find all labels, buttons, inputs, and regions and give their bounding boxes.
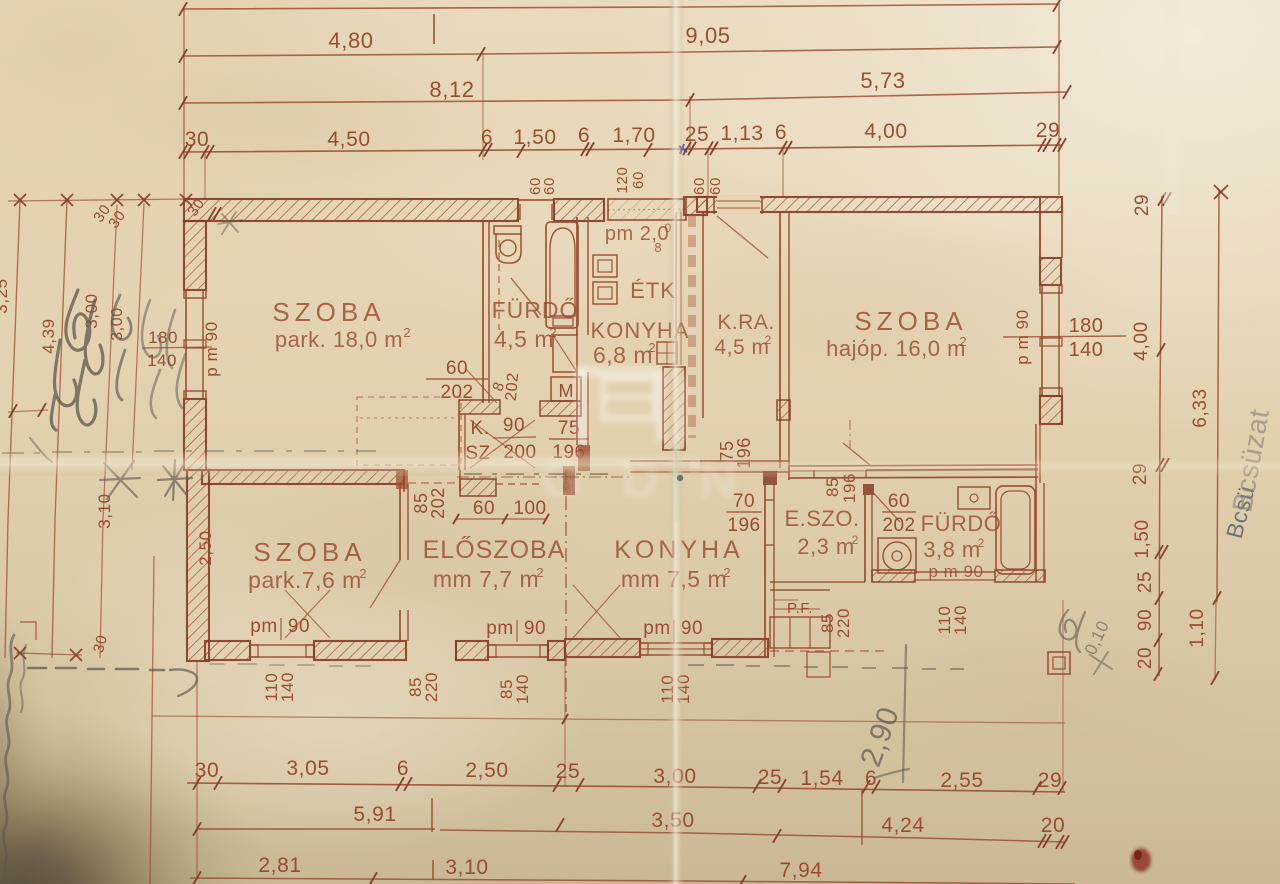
svg-text:K.RA.: K.RA. — [717, 311, 774, 334]
svg-text:6: 6 — [481, 126, 493, 149]
svg-text:180: 180 — [1069, 315, 1104, 337]
svg-text:3,10: 3,10 — [95, 493, 114, 529]
svg-text:1,50: 1,50 — [1132, 519, 1153, 558]
svg-text:2,55: 2,55 — [940, 769, 983, 792]
svg-text:90: 90 — [288, 616, 310, 637]
svg-text:90: 90 — [1135, 609, 1156, 631]
svg-text:25: 25 — [685, 123, 710, 146]
svg-text:220: 220 — [834, 608, 853, 638]
svg-text:pm: pm — [486, 618, 513, 639]
svg-text:mm 7,7 m: mm 7,7 m — [433, 566, 539, 592]
svg-text:60: 60 — [446, 358, 468, 379]
svg-text:196: 196 — [840, 473, 859, 503]
svg-text:p m 90: p m 90 — [929, 562, 984, 581]
svg-text:140: 140 — [951, 605, 970, 635]
svg-text:202: 202 — [882, 515, 915, 536]
svg-text:1,50: 1,50 — [513, 126, 556, 149]
svg-text:park. 18,0 m: park. 18,0 m — [275, 327, 403, 352]
svg-text:30: 30 — [185, 128, 210, 151]
svg-text:1,13: 1,13 — [720, 122, 763, 145]
svg-text:29: 29 — [1038, 769, 1063, 792]
svg-text:1,10: 1,10 — [1187, 608, 1208, 647]
svg-text:5,73: 5,73 — [860, 68, 905, 93]
svg-text:SZOBA: SZOBA — [854, 306, 967, 336]
svg-text:9,05: 9,05 — [685, 23, 730, 48]
svg-text:25: 25 — [758, 766, 783, 789]
svg-text:M: M — [559, 381, 574, 401]
svg-text:2,81: 2,81 — [258, 854, 301, 877]
svg-text:FÜRDŐ: FÜRDŐ — [492, 297, 579, 323]
svg-text:30: 30 — [195, 759, 220, 782]
svg-text:SZOBA: SZOBA — [253, 537, 366, 567]
svg-text:1,70: 1,70 — [612, 124, 655, 147]
svg-text:ELŐSZOBA: ELŐSZOBA — [423, 535, 566, 564]
svg-text:25: 25 — [556, 760, 581, 783]
svg-text:6,33: 6,33 — [1190, 388, 1211, 427]
svg-text:4,50: 4,50 — [327, 128, 370, 151]
svg-text:140: 140 — [1069, 339, 1104, 361]
svg-text:202: 202 — [428, 487, 448, 519]
svg-text:K.: K. — [471, 418, 490, 439]
svg-text:60: 60 — [541, 177, 558, 195]
svg-text:2,3 m: 2,3 m — [797, 534, 855, 559]
svg-text:60: 60 — [630, 171, 647, 189]
svg-text:25: 25 — [1135, 571, 1156, 593]
svg-text:4,5 m: 4,5 m — [714, 336, 769, 359]
svg-text:120: 120 — [614, 167, 631, 194]
svg-text:180: 180 — [148, 328, 178, 347]
svg-text:p m 90: p m 90 — [1013, 309, 1032, 365]
svg-text:220: 220 — [422, 672, 441, 702]
svg-text:3,05: 3,05 — [286, 757, 329, 780]
svg-text:202: 202 — [440, 382, 473, 403]
svg-text:2: 2 — [765, 333, 772, 347]
svg-text:5,91: 5,91 — [353, 803, 396, 826]
svg-text:2: 2 — [723, 565, 730, 580]
svg-text:4,24: 4,24 — [881, 814, 924, 837]
svg-text:4,39: 4,39 — [39, 318, 58, 354]
svg-text:2: 2 — [978, 536, 985, 550]
svg-text:60: 60 — [707, 177, 724, 195]
svg-text:4,5 m: 4,5 m — [494, 326, 554, 352]
svg-text:2: 2 — [536, 565, 543, 580]
svg-text:4,00: 4,00 — [1131, 321, 1152, 360]
svg-text:FÜRDŐ: FÜRDŐ — [921, 511, 1002, 536]
svg-text:6: 6 — [775, 121, 787, 144]
svg-text:1,54: 1,54 — [800, 767, 843, 790]
svg-text:20: 20 — [1135, 647, 1156, 669]
svg-text:6: 6 — [397, 757, 409, 780]
svg-text:pm: pm — [250, 616, 277, 637]
svg-text:140: 140 — [513, 674, 532, 704]
svg-text:3,8 m: 3,8 m — [923, 537, 981, 562]
svg-text:90: 90 — [524, 618, 546, 639]
svg-text:2: 2 — [359, 566, 366, 581]
svg-text:20: 20 — [1041, 814, 1066, 837]
svg-text:29: 29 — [1036, 119, 1061, 142]
svg-text:pm: pm — [643, 618, 670, 639]
svg-text:6: 6 — [578, 124, 590, 147]
svg-text:park.7,6 m: park.7,6 m — [248, 567, 362, 593]
svg-text:7,94: 7,94 — [779, 859, 822, 882]
svg-text:hajóp. 16,0 m: hajóp. 16,0 m — [826, 336, 966, 361]
svg-text:196: 196 — [727, 515, 760, 536]
svg-text:2: 2 — [549, 325, 556, 340]
svg-text:E.SZO.: E.SZO. — [784, 506, 859, 531]
svg-text:2: 2 — [648, 340, 655, 355]
svg-text:60: 60 — [691, 177, 708, 195]
svg-text:2: 2 — [852, 533, 859, 547]
svg-text:4,00: 4,00 — [864, 120, 907, 143]
svg-text:29: 29 — [1132, 194, 1153, 216]
svg-text:p m 90: p m 90 — [202, 321, 221, 377]
svg-text:2: 2 — [959, 334, 966, 349]
svg-text:8: 8 — [654, 240, 661, 255]
svg-text:3,10: 3,10 — [445, 856, 488, 879]
svg-text:3,25: 3,25 — [0, 278, 11, 314]
svg-text:8,12: 8,12 — [429, 77, 474, 102]
svg-text:4,80: 4,80 — [328, 28, 373, 53]
svg-text:P.F.: P.F. — [787, 600, 813, 617]
svg-text:60: 60 — [473, 498, 495, 519]
svg-text:2: 2 — [403, 325, 410, 340]
svg-text:SZOBA: SZOBA — [272, 297, 385, 327]
svg-text:6,8 m: 6,8 m — [593, 342, 653, 368]
svg-text:2,50: 2,50 — [465, 759, 508, 782]
svg-text:90: 90 — [503, 415, 525, 436]
svg-text:140: 140 — [278, 672, 297, 702]
svg-text:2,50: 2,50 — [196, 530, 215, 566]
svg-text:60: 60 — [888, 491, 910, 512]
